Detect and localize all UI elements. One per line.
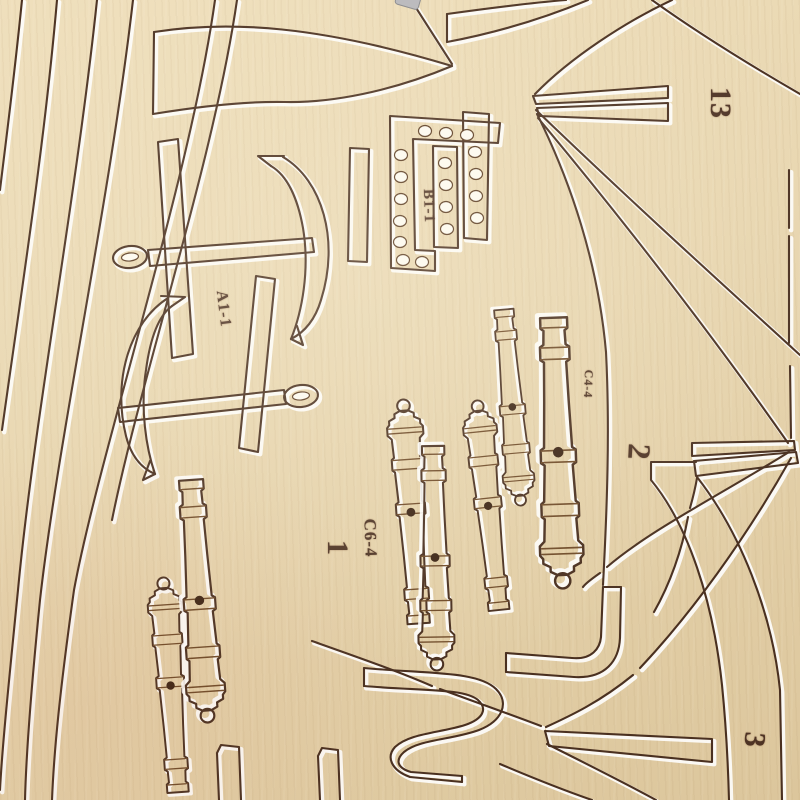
part-number-stamp-b1-1: B1-1 — [419, 189, 437, 224]
part-number-stamp-1: 1 — [320, 540, 354, 556]
cannon-piece — [486, 306, 537, 507]
cannon-piece — [460, 398, 518, 613]
metal-tab — [395, 0, 422, 10]
cannon-piece — [529, 314, 584, 589]
part-number-stamp-13: 13 — [703, 87, 737, 119]
cannon-piece — [146, 576, 198, 795]
anchor-ring-slot — [121, 252, 139, 262]
part-number-stamp-3: 3 — [736, 731, 771, 750]
cannon-piece — [385, 398, 439, 627]
part-number-stamp-c6-4: C6-4 — [359, 518, 380, 558]
laser-cut-parts-drawing — [0, 0, 800, 800]
part-number-stamp-c4-4: C4-4 — [580, 369, 596, 398]
plywood-kit-sheet-photo: 13 B1-1 A1-1 C4-4 2 C6-4 1 3 — [0, 0, 800, 800]
part-number-stamp-2: 2 — [620, 443, 658, 462]
cannon-piece — [413, 444, 455, 671]
anchor-ring-slot — [292, 391, 310, 401]
